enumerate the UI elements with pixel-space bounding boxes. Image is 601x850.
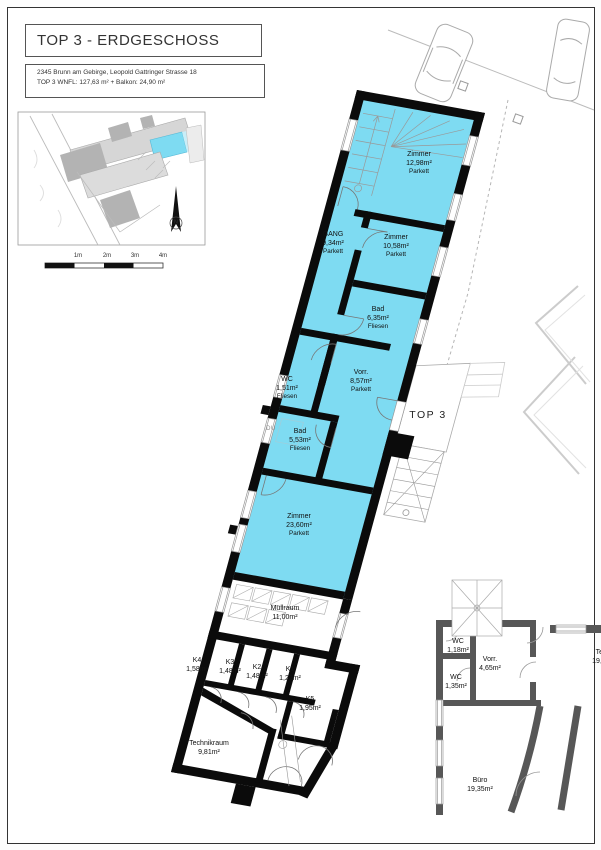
entry-vestibule-marks (263, 714, 317, 788)
address-box: 2345 Brunn am Gebirge, Leopold Gattringe… (25, 64, 265, 98)
apartment-highlight (228, 95, 480, 599)
adjacent-stair (452, 580, 502, 636)
area-summary-line: TOP 3 WNFL: 127,63 m² + Balkon: 24,90 m² (37, 78, 264, 88)
car-icon (413, 22, 476, 105)
scale-bar (45, 263, 163, 268)
floorplan-sheet: { "header": { "title": "TOP 3 - ERDGESCH… (0, 0, 601, 850)
building-strip (158, 89, 572, 830)
site-inset-map (18, 112, 205, 245)
page-title: TOP 3 - ERDGESCHOSS (37, 32, 219, 49)
car-icon-2 (545, 18, 590, 102)
address-line: 2345 Brunn am Gebirge, Leopold Gattringe… (37, 68, 264, 78)
floor-plan-drawing (0, 0, 601, 850)
adjacent-unit (436, 580, 601, 815)
title-box: TOP 3 - ERDGESCHOSS (25, 24, 262, 57)
